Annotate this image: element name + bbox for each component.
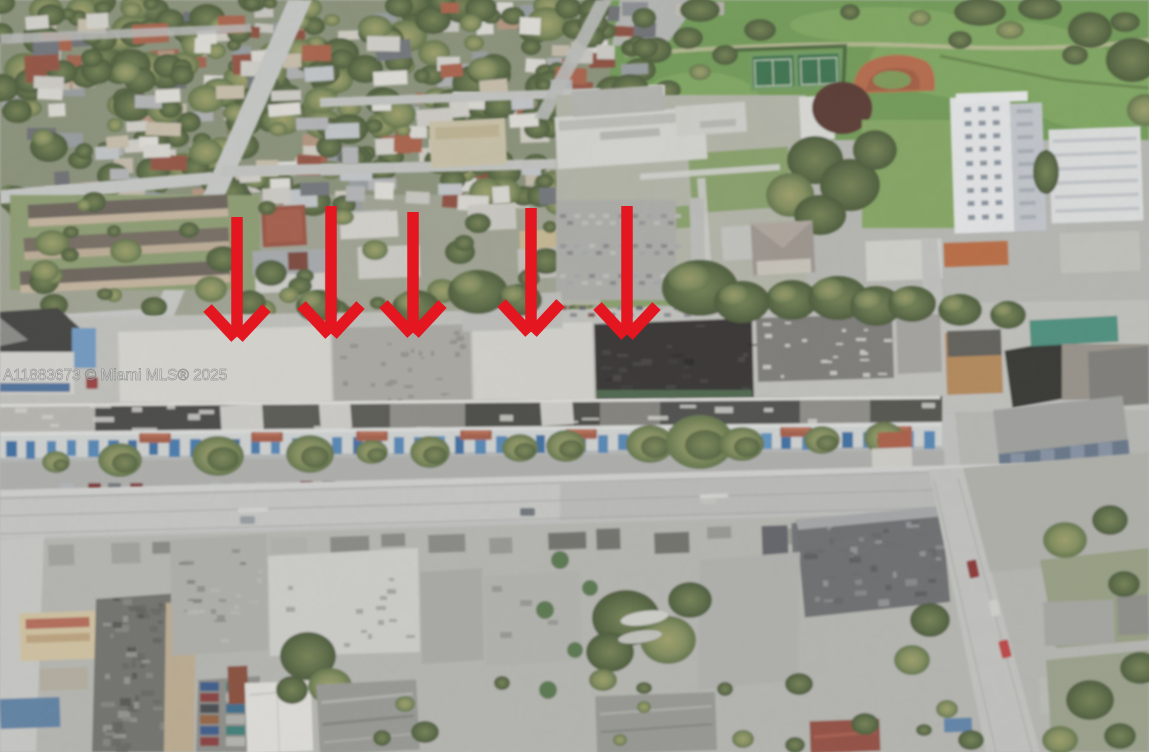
svg-text:A11883673 © Miami MLS® 2025: A11883673 © Miami MLS® 2025: [3, 367, 227, 384]
